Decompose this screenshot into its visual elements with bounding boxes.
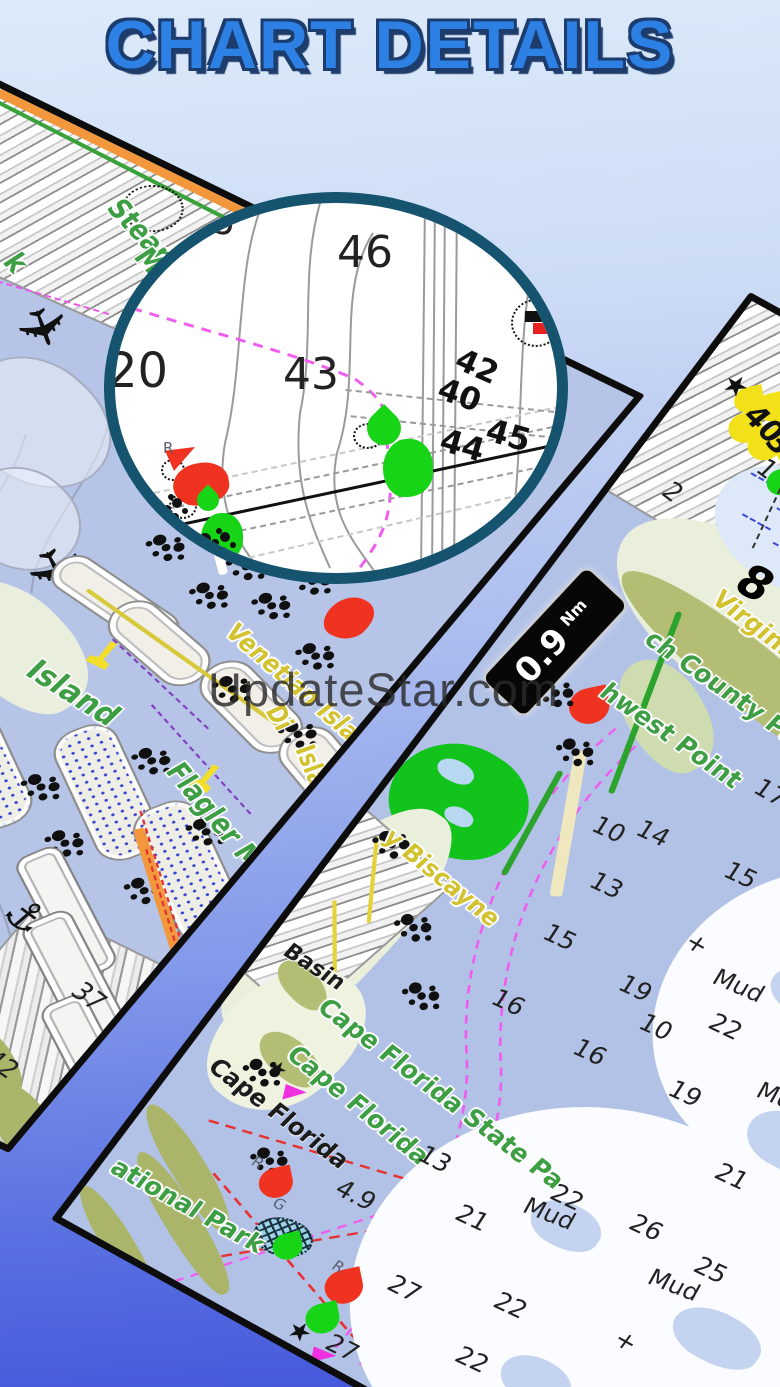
- depth-sounding: 22: [704, 1009, 747, 1044]
- depth-sounding: 21: [451, 1201, 494, 1236]
- depth-sounding: 19: [614, 971, 657, 1006]
- island-label-fragment: Isla: [291, 741, 333, 789]
- bottom-type-label: Mud: [753, 1079, 780, 1119]
- buoy-letter: R: [329, 1258, 347, 1275]
- depth-sounding: 16: [487, 985, 530, 1020]
- depth-sounding: 46: [337, 231, 393, 275]
- depth-sounding: 26: [625, 1210, 668, 1245]
- depth-sounding: 43: [283, 353, 339, 397]
- depth-sounding: 10: [635, 1010, 678, 1045]
- depth-sounding: 19: [664, 1076, 707, 1111]
- watermark: UpdateStar.com: [208, 662, 559, 717]
- depth-sounding: 20: [107, 347, 168, 395]
- rock-symbol: +: [680, 928, 714, 958]
- chart-details-promo: ✈✈⚓ Stearns ParkMartell Parkk109.8Island…: [0, 0, 780, 1387]
- park-label-fragment: k: [0, 249, 33, 277]
- national-park-label: ational Park: [106, 1154, 270, 1257]
- depth-sounding: 16: [569, 1035, 612, 1070]
- key-biscayne-label: y Biscayne: [379, 825, 505, 931]
- flagler-label: Flagler Me: [160, 758, 280, 886]
- depth-sounding: 42: [0, 1047, 24, 1084]
- depth-sounding: 27: [321, 1330, 364, 1365]
- depth-sounding: 22: [451, 1342, 494, 1377]
- depth-sounding: 45: [483, 414, 535, 457]
- buoy-letter: R: [163, 441, 173, 456]
- depth-sounding: 5: [209, 203, 239, 243]
- depth-sounding: 14: [632, 816, 675, 851]
- buoy-letter: R: [248, 1154, 266, 1171]
- distance-unit: Nm: [556, 595, 590, 630]
- lens-labels: 46434240444567205R: [115, 203, 557, 573]
- depth-sounding: 17: [749, 775, 780, 811]
- depth-sounding: 27: [383, 1271, 426, 1306]
- depth-sounding: 10: [588, 812, 631, 847]
- page-title: CHART DETAILS: [0, 6, 780, 84]
- depth-sounding: 22: [489, 1288, 532, 1323]
- depth-sounding: 1: [751, 455, 780, 484]
- depth-sounding: 15: [719, 858, 762, 893]
- depth-sounding: 44: [437, 424, 489, 467]
- depth-sounding: 21: [710, 1159, 753, 1194]
- depth-sounding: 2: [656, 478, 688, 507]
- basin-label: Basin: [278, 941, 349, 995]
- depth-sounding: 4.9: [331, 1176, 381, 1215]
- depth-sounding: 37: [65, 978, 112, 1015]
- magnifier-lens: 46434240444567205R: [104, 192, 568, 584]
- buoy-letter: G: [269, 1196, 288, 1214]
- depth-sounding: 15: [539, 920, 582, 955]
- rock-symbol: +: [609, 1326, 643, 1356]
- island-label: Island: [19, 656, 126, 731]
- bottom-type-label: Mud: [709, 965, 769, 1006]
- depth-sounding: 13: [585, 868, 628, 903]
